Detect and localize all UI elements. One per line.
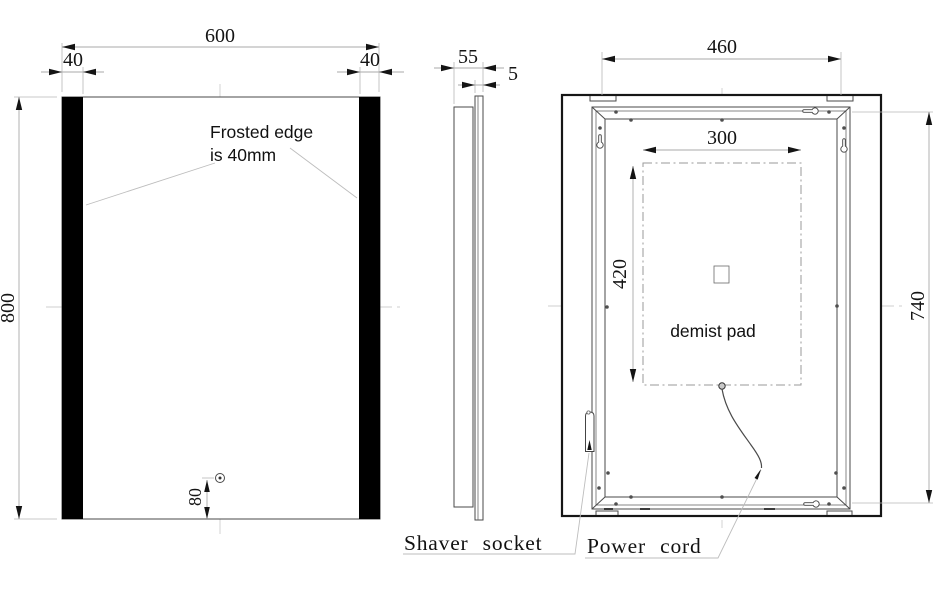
dim-300-value: 300 — [707, 127, 737, 149]
frosted-band-right — [359, 97, 380, 519]
frosted-band-left — [62, 97, 83, 519]
dim-600-value: 600 — [205, 25, 235, 47]
dim-740-value: 740 — [907, 291, 929, 321]
dim-80-value: 80 — [185, 488, 205, 506]
drawing-canvas: 600 40 40 800 — [0, 0, 935, 600]
dim-55-value: 55 — [458, 46, 478, 68]
sensor-dot — [219, 477, 222, 480]
note-line-1: Frosted edge — [210, 122, 313, 142]
back-mirror-outline — [562, 95, 881, 516]
power-cord-label: Power cord — [587, 534, 702, 558]
dim-height-800: 800 — [0, 97, 57, 519]
dim-frost-right-40: 40 — [337, 49, 404, 94]
dim-40-right-value: 40 — [360, 49, 380, 71]
dim-5-value: 5 — [508, 63, 518, 85]
demist-pad-label: demist pad — [670, 321, 756, 341]
dim-depth-55: 55 — [434, 46, 504, 104]
side-view: 55 5 — [434, 46, 518, 520]
mirror-technical-drawing: 600 40 40 800 — [0, 0, 935, 600]
dim-back-width-460: 460 — [602, 36, 841, 95]
shaver-socket-ring — [587, 411, 590, 414]
shaver-socket — [586, 411, 595, 452]
touch-sensor — [216, 474, 225, 483]
side-mirror-glass — [475, 96, 483, 520]
cord-exit-grommet — [719, 383, 725, 389]
dim-800-value: 800 — [0, 293, 19, 323]
dim-460-value: 460 — [707, 36, 737, 58]
side-backing-box — [454, 107, 473, 507]
note-line-2: is 40mm — [210, 145, 276, 165]
dim-40-left-value: 40 — [63, 49, 83, 71]
dim-width-600: 600 — [62, 25, 379, 92]
back-view: demist pad 460 300 420 — [548, 36, 933, 528]
dim-420-value: 420 — [609, 259, 631, 289]
dim-frost-left-40: 40 — [41, 49, 104, 94]
shaver-socket-label: Shaver socket — [404, 531, 542, 555]
junction-box — [714, 266, 729, 283]
front-view: 600 40 40 800 — [0, 25, 404, 534]
